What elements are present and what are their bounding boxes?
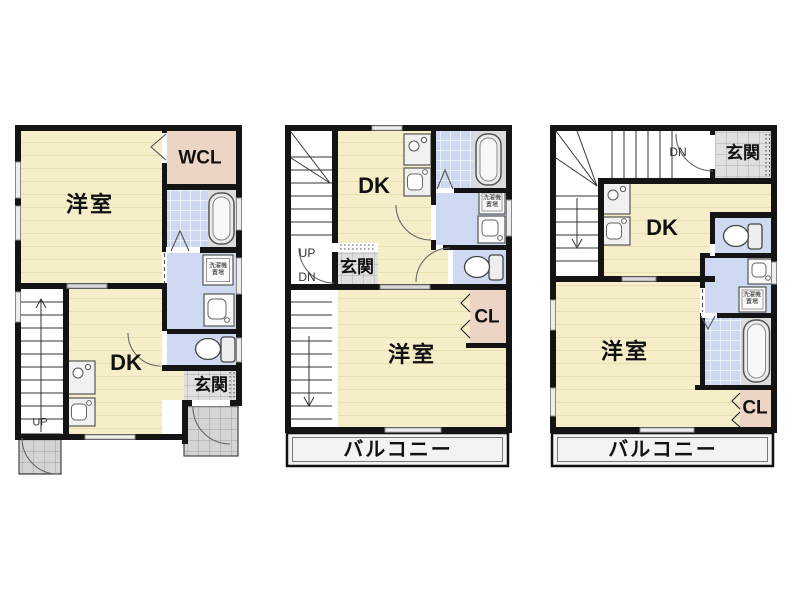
floor2-plan [285,125,512,466]
f1-bath-tile [167,190,208,247]
f2-laundry-label: 洗濯機 置場 [483,196,501,209]
bathtub-icon [476,134,501,185]
f3-laundry-label: 洗濯機 置場 [743,293,761,306]
laundry-line2: 置場 [483,202,501,209]
f3-hall-strip [715,184,771,212]
f1-western-room-label: 洋室 [66,194,114,216]
f1-entrance-label: 玄関 [194,377,228,394]
washbasin-icon [748,259,773,284]
f1-hall-strip [162,371,184,400]
f3-western-room-label: 洋室 [601,341,649,363]
f2-western-room-label: 洋室 [388,344,436,366]
floorplan-canvas: 洋室 WCL DK 玄関 UP 洗濯機 置場 DK 玄関 UP DN 洋室 CL… [0,0,800,600]
toilet-icon [465,255,504,280]
floorplan-drawing [0,0,800,600]
f2-entrance-step [338,243,378,252]
f3-closet-label: CL [742,399,767,418]
f3-entrance-label: 玄関 [726,145,760,162]
kitchen-counter-icon [68,361,95,426]
f1-laundry-label: 洗濯機 置場 [209,264,227,277]
f2-entrance-label: 玄関 [340,259,374,276]
bathtub-icon [209,193,234,244]
f3-dn-label: DN [669,146,686,158]
f3-stairs-landing [598,131,710,178]
f2-up-label: UP [299,247,316,259]
laundry-line2: 置場 [743,299,761,306]
washbasin-icon [478,216,505,243]
f1-porch-east [184,406,238,456]
laundry-line1: 洗濯機 [209,264,227,271]
f1-dk-label: DK [110,352,142,374]
f2-balcony-label: バルコニー [343,440,453,460]
laundry-line1: 洗濯機 [483,196,501,203]
f1-up-label: UP [32,418,47,429]
laundry-line2: 置場 [209,270,227,277]
f3-dk-label: DK [646,217,678,239]
toilet-icon [724,224,763,249]
f2-dn-label: DN [298,271,315,283]
laundry-line1: 洗濯機 [743,293,761,300]
washbasin-icon [204,294,234,326]
kitchen-counter-icon [603,183,630,245]
f1-stairs-area [21,289,63,434]
f2-dk-label: DK [358,175,390,197]
f2-closet-label: CL [474,308,499,327]
f3-balcony-label: バルコニー [608,440,718,460]
toilet-icon [196,337,236,362]
bathtub-icon [744,320,770,382]
kitchen-counter-icon [404,134,431,196]
floor1-plan [15,125,242,474]
f3-bath-tile [705,318,742,385]
f1-wcl-label: WCL [178,149,221,168]
